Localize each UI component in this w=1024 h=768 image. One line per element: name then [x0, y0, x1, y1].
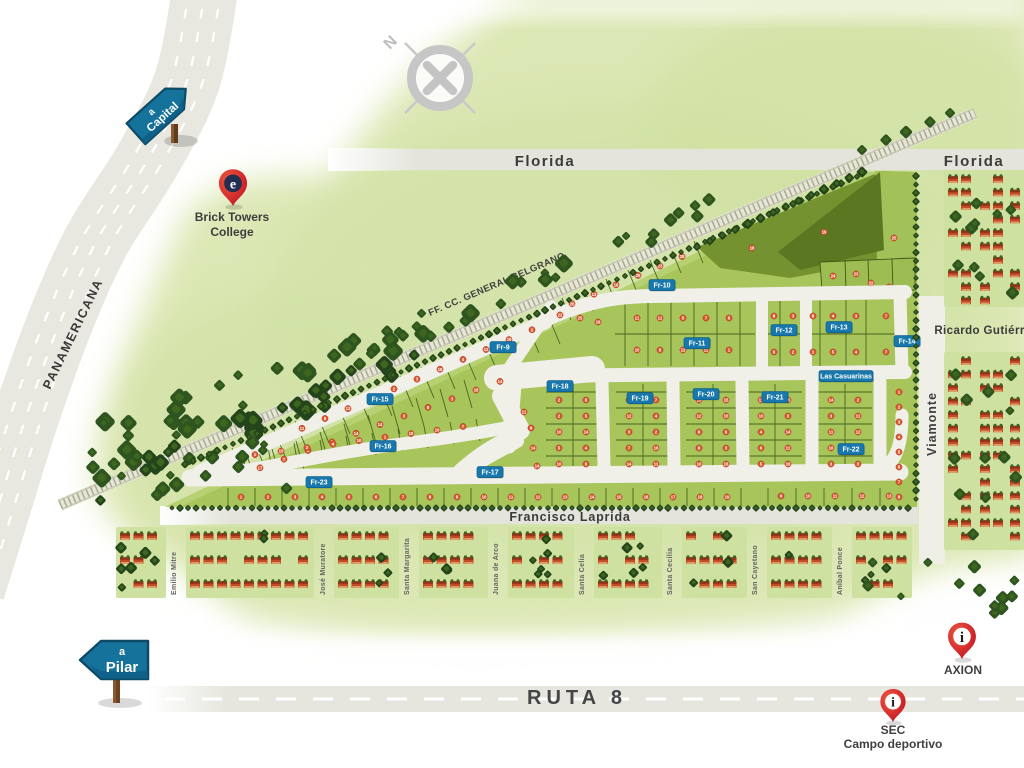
svg-text:17: 17: [671, 495, 676, 500]
svg-text:Las Casuarinas: Las Casuarinas: [820, 374, 872, 381]
svg-text:Fr-14: Fr-14: [898, 339, 915, 346]
svg-text:Francisco Laprida: Francisco Laprida: [509, 510, 631, 524]
svg-text:10: 10: [557, 430, 562, 435]
svg-text:22: 22: [558, 313, 563, 318]
svg-text:Viamonte: Viamonte: [925, 392, 939, 456]
svg-text:Fr-18: Fr-18: [551, 384, 568, 391]
svg-text:10: 10: [697, 462, 702, 467]
svg-text:12: 12: [697, 414, 702, 419]
svg-text:Fr-22: Fr-22: [842, 447, 859, 454]
svg-text:11: 11: [522, 410, 527, 415]
svg-text:Fr-21: Fr-21: [766, 395, 783, 402]
svg-text:14: 14: [354, 431, 359, 436]
svg-text:25: 25: [892, 236, 897, 241]
svg-text:i: i: [960, 630, 964, 646]
svg-text:12: 12: [856, 430, 861, 435]
svg-text:Santa Celia: Santa Celia: [579, 554, 586, 595]
svg-text:12: 12: [536, 495, 541, 500]
svg-text:11: 11: [300, 426, 305, 431]
svg-text:Florida: Florida: [515, 153, 576, 170]
svg-text:18: 18: [698, 495, 703, 500]
svg-text:10: 10: [482, 495, 487, 500]
svg-text:SEC: SEC: [881, 723, 906, 737]
svg-text:10: 10: [557, 462, 562, 467]
svg-text:Ricardo Gutiérrez: Ricardo Gutiérrez: [934, 325, 1024, 337]
svg-text:10: 10: [435, 428, 440, 433]
svg-text:Fr-20: Fr-20: [697, 392, 714, 399]
svg-text:10: 10: [724, 414, 729, 419]
svg-text:18: 18: [438, 367, 443, 372]
svg-text:14: 14: [786, 430, 791, 435]
svg-text:18: 18: [474, 388, 479, 393]
svg-text:24: 24: [831, 274, 836, 279]
svg-text:Campo deportivo: Campo deportivo: [844, 737, 943, 751]
svg-text:12: 12: [627, 414, 632, 419]
svg-text:Fr-11: Fr-11: [689, 341, 706, 348]
svg-text:19: 19: [725, 495, 730, 500]
svg-text:Florida: Florida: [944, 153, 1005, 170]
svg-text:Pilar: Pilar: [106, 659, 139, 676]
svg-text:19: 19: [822, 230, 827, 235]
svg-text:15: 15: [617, 495, 622, 500]
svg-text:e: e: [230, 176, 236, 192]
svg-text:12: 12: [484, 347, 489, 352]
svg-text:Fr-10: Fr-10: [653, 283, 670, 290]
svg-text:11: 11: [654, 462, 659, 467]
svg-text:18: 18: [750, 246, 755, 251]
svg-text:11: 11: [829, 430, 834, 435]
svg-text:Fr-23: Fr-23: [310, 480, 327, 487]
svg-text:22: 22: [869, 281, 874, 286]
svg-text:Fr-19: Fr-19: [631, 396, 648, 403]
svg-text:14: 14: [531, 446, 536, 451]
svg-text:14: 14: [535, 464, 540, 469]
svg-text:Fr-12: Fr-12: [775, 328, 792, 335]
svg-text:16: 16: [724, 462, 729, 467]
svg-text:Fr-15: Fr-15: [371, 397, 388, 404]
svg-text:Aníbal Ponce: Aníbal Ponce: [837, 547, 844, 595]
svg-text:16: 16: [614, 282, 619, 287]
svg-text:10: 10: [759, 414, 764, 419]
svg-text:Santa Margarita: Santa Margarita: [404, 538, 411, 595]
svg-text:José Muratore: José Muratore: [320, 543, 327, 595]
svg-text:14: 14: [590, 495, 595, 500]
svg-text:28: 28: [680, 254, 685, 259]
svg-text:11: 11: [509, 495, 514, 500]
svg-text:12: 12: [860, 494, 865, 499]
svg-text:Fr-17: Fr-17: [481, 470, 498, 477]
svg-text:14: 14: [378, 422, 383, 427]
svg-text:13: 13: [346, 406, 351, 411]
svg-text:RUTA 8: RUTA 8: [527, 687, 627, 709]
svg-text:14: 14: [627, 462, 632, 467]
svg-text:17: 17: [258, 465, 263, 470]
svg-text:11: 11: [833, 494, 838, 499]
svg-text:10: 10: [409, 431, 414, 436]
svg-text:14: 14: [498, 379, 503, 384]
svg-text:a: a: [119, 646, 126, 658]
svg-text:10: 10: [279, 449, 284, 454]
svg-text:AXION: AXION: [944, 663, 982, 677]
svg-text:11: 11: [658, 316, 663, 321]
svg-text:16: 16: [829, 446, 834, 451]
svg-text:16: 16: [786, 462, 791, 467]
svg-text:11: 11: [856, 414, 861, 419]
svg-text:13: 13: [592, 292, 597, 297]
svg-text:San Cayetano: San Cayetano: [752, 545, 759, 595]
svg-text:14: 14: [584, 430, 589, 435]
svg-text:11: 11: [635, 316, 640, 321]
svg-text:19: 19: [596, 320, 601, 325]
svg-text:Fr-9: Fr-9: [496, 345, 509, 352]
svg-text:16: 16: [654, 446, 659, 451]
svg-text:Juana de Arco: Juana de Arco: [493, 543, 500, 595]
svg-text:25: 25: [578, 316, 583, 321]
svg-text:14: 14: [829, 398, 834, 403]
svg-text:13: 13: [563, 495, 568, 500]
svg-text:College: College: [210, 225, 254, 239]
svg-text:15: 15: [724, 398, 729, 403]
svg-text:25: 25: [636, 273, 641, 278]
svg-text:i: i: [891, 694, 895, 709]
svg-text:13: 13: [887, 494, 892, 499]
svg-text:Santa Cecilia: Santa Cecilia: [667, 548, 674, 595]
svg-text:Fr-13: Fr-13: [830, 325, 847, 332]
svg-text:26: 26: [570, 301, 575, 306]
svg-text:23: 23: [854, 272, 859, 277]
svg-text:Emilio Mitre: Emilio Mitre: [171, 552, 178, 595]
svg-text:Brick Towers: Brick Towers: [195, 210, 270, 224]
svg-text:11: 11: [786, 446, 791, 451]
svg-text:Fr-16: Fr-16: [374, 444, 391, 451]
svg-text:10: 10: [357, 438, 362, 443]
svg-text:16: 16: [644, 495, 649, 500]
svg-text:10: 10: [806, 494, 811, 499]
svg-text:10: 10: [635, 348, 640, 353]
